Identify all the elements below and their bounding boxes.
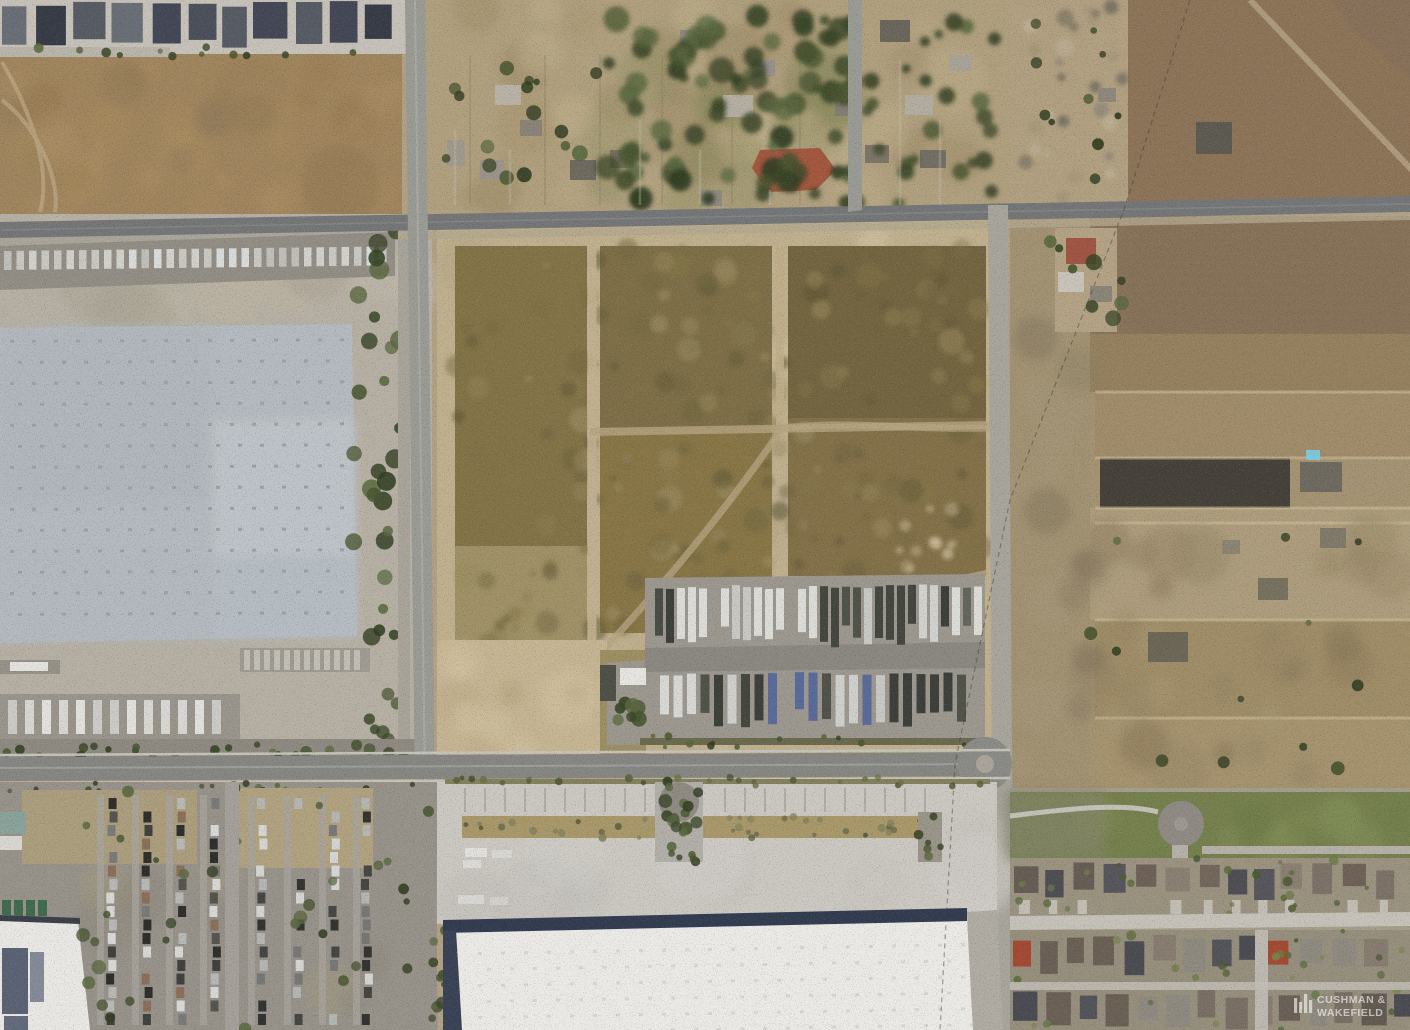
svg-text:WAKEFIELD: WAKEFIELD <box>1317 1007 1383 1019</box>
svg-text:CUSHMAN &: CUSHMAN & <box>1317 994 1386 1006</box>
